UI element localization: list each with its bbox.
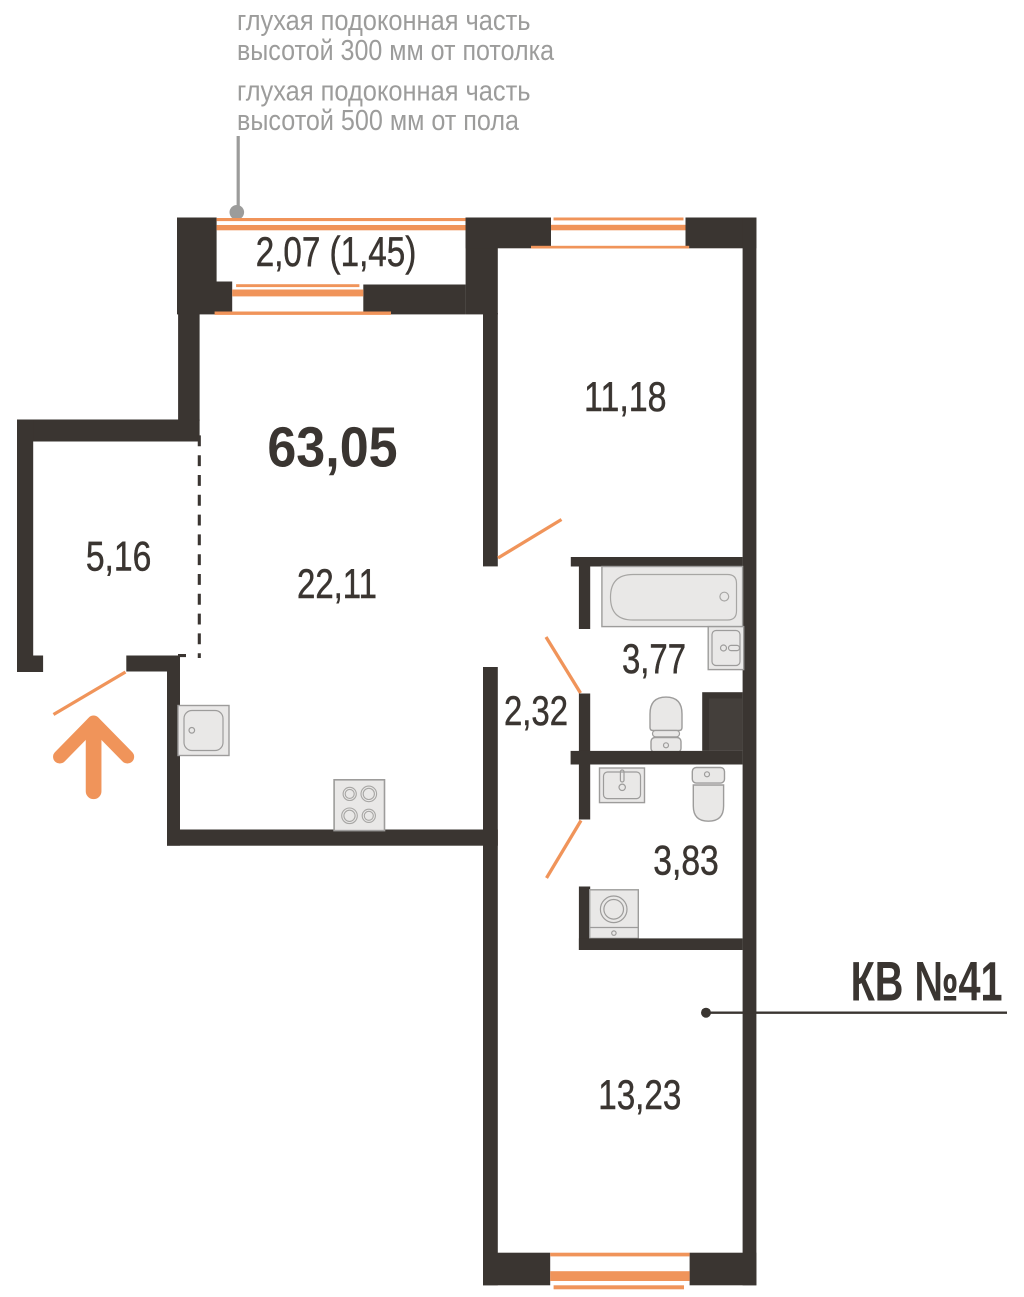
- svg-text:глухая подоконная часть: глухая подоконная часть: [237, 5, 531, 37]
- svg-text:КВ №41: КВ №41: [851, 950, 1003, 1013]
- svg-text:высотой 300 мм от потолка: высотой 300 мм от потолка: [237, 35, 555, 67]
- svg-text:2,32: 2,32: [504, 687, 568, 734]
- svg-text:13,23: 13,23: [598, 1071, 681, 1118]
- svg-text:11,18: 11,18: [584, 373, 667, 420]
- svg-text:3,77: 3,77: [622, 635, 686, 682]
- svg-text:63,05: 63,05: [267, 415, 397, 479]
- svg-text:3,83: 3,83: [653, 837, 719, 884]
- svg-text:5,16: 5,16: [86, 532, 152, 579]
- svg-text:22,11: 22,11: [297, 560, 377, 607]
- svg-text:глухая подоконная часть: глухая подоконная часть: [237, 76, 531, 108]
- svg-text:2,07 (1,45): 2,07 (1,45): [256, 228, 417, 275]
- svg-text:высотой 500 мм от пола: высотой 500 мм от пола: [237, 105, 520, 137]
